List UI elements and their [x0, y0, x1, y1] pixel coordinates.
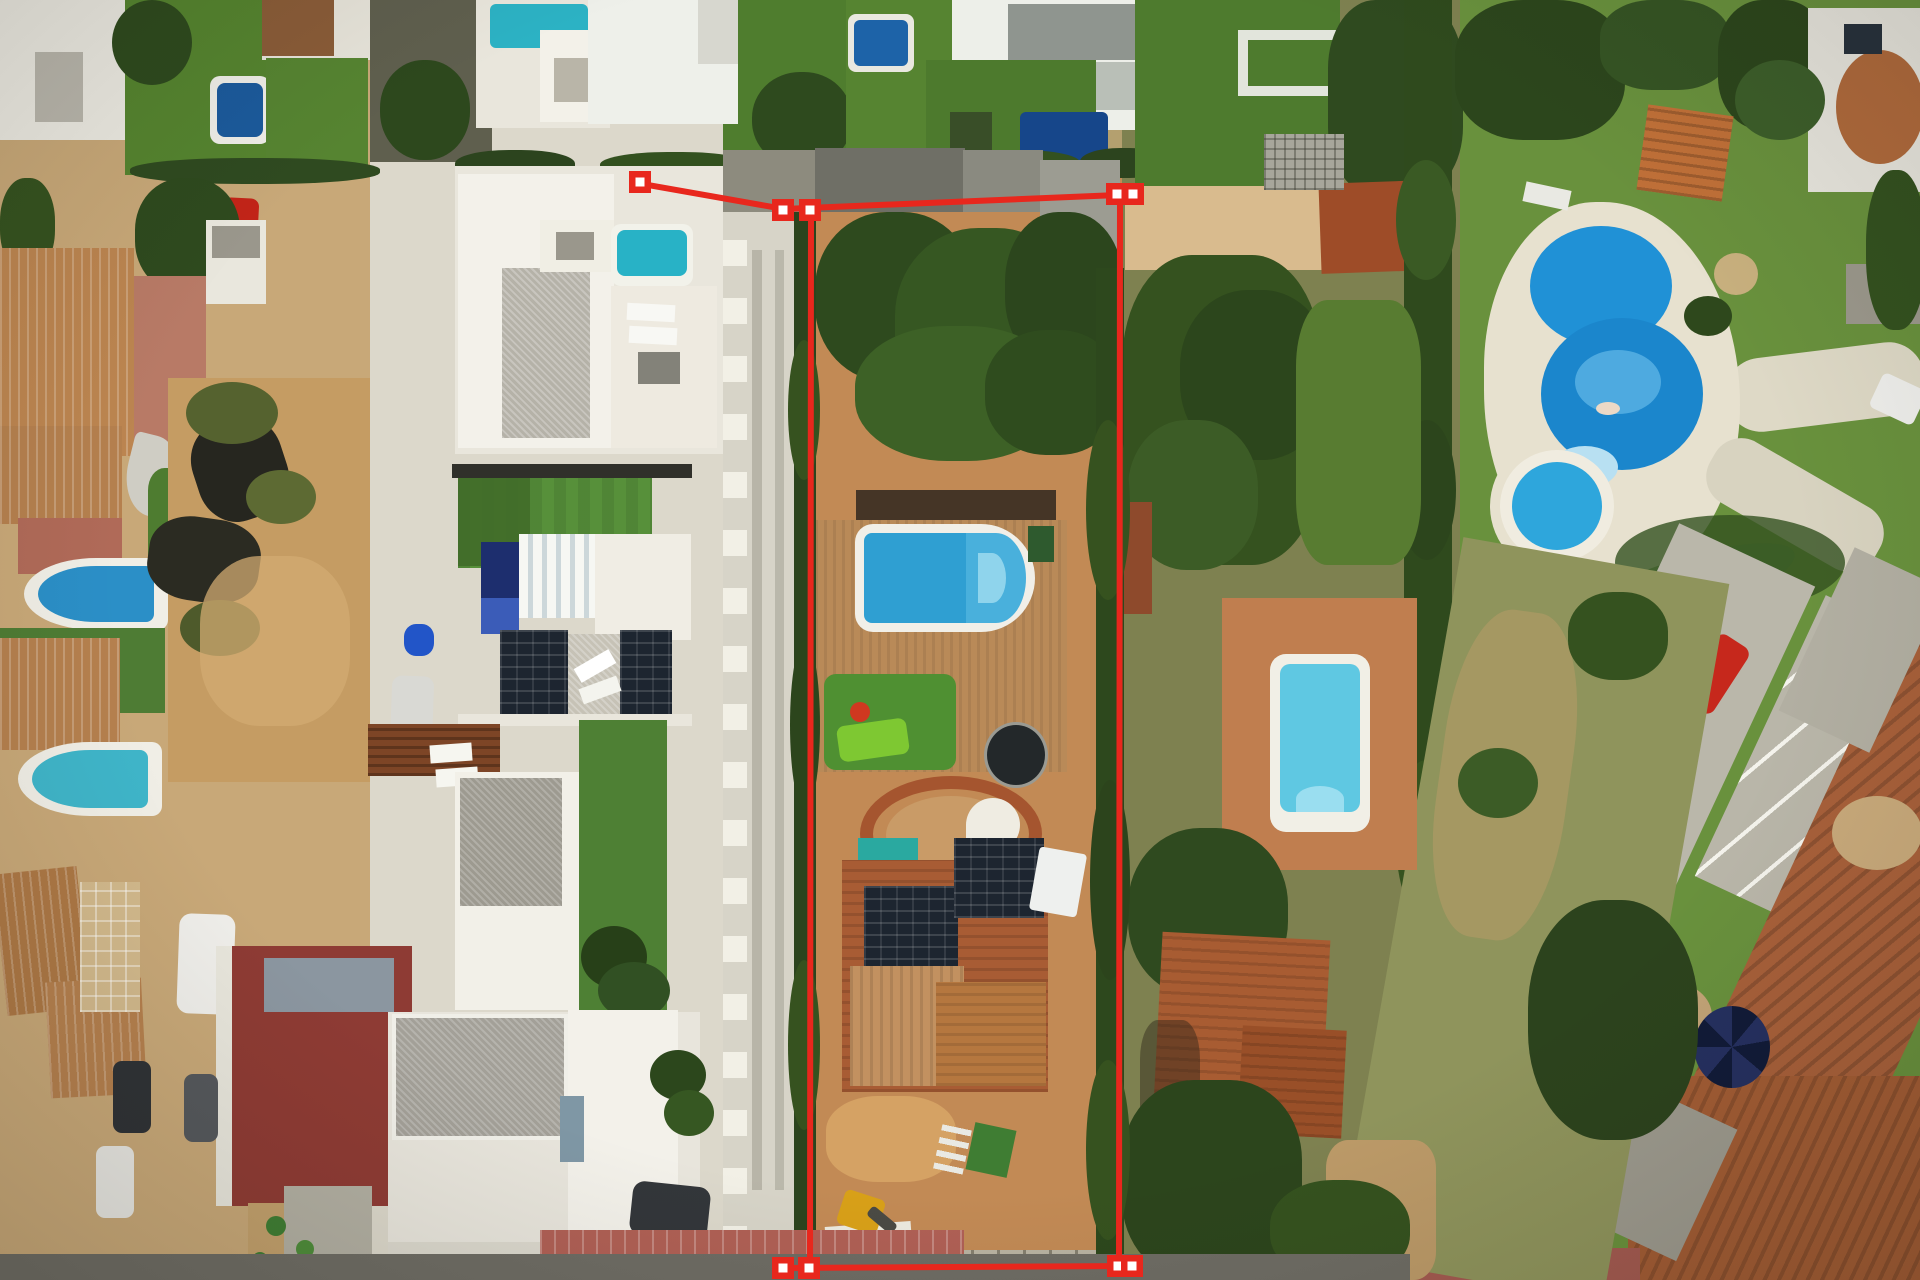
boundary-marker-hole	[806, 206, 815, 215]
boundary-marker-hole	[805, 1264, 814, 1273]
boundary-marker-hole	[1128, 1262, 1137, 1271]
boundary-marker-hole	[1129, 190, 1138, 199]
plot-boundary-line	[642, 184, 784, 209]
aerial-photo	[0, 0, 1920, 1280]
plot-boundary-line	[784, 195, 1118, 209]
boundary-marker-hole	[1113, 190, 1122, 199]
plot-boundary-line	[810, 211, 811, 1267]
boundary-marker-hole	[779, 1264, 788, 1273]
plot-boundary-line	[1119, 197, 1120, 1266]
boundary-marker-hole	[636, 178, 645, 187]
plot-boundary-line	[784, 1266, 1132, 1268]
plot-boundary-overlay	[0, 0, 1920, 1280]
boundary-marker-hole	[779, 206, 788, 215]
